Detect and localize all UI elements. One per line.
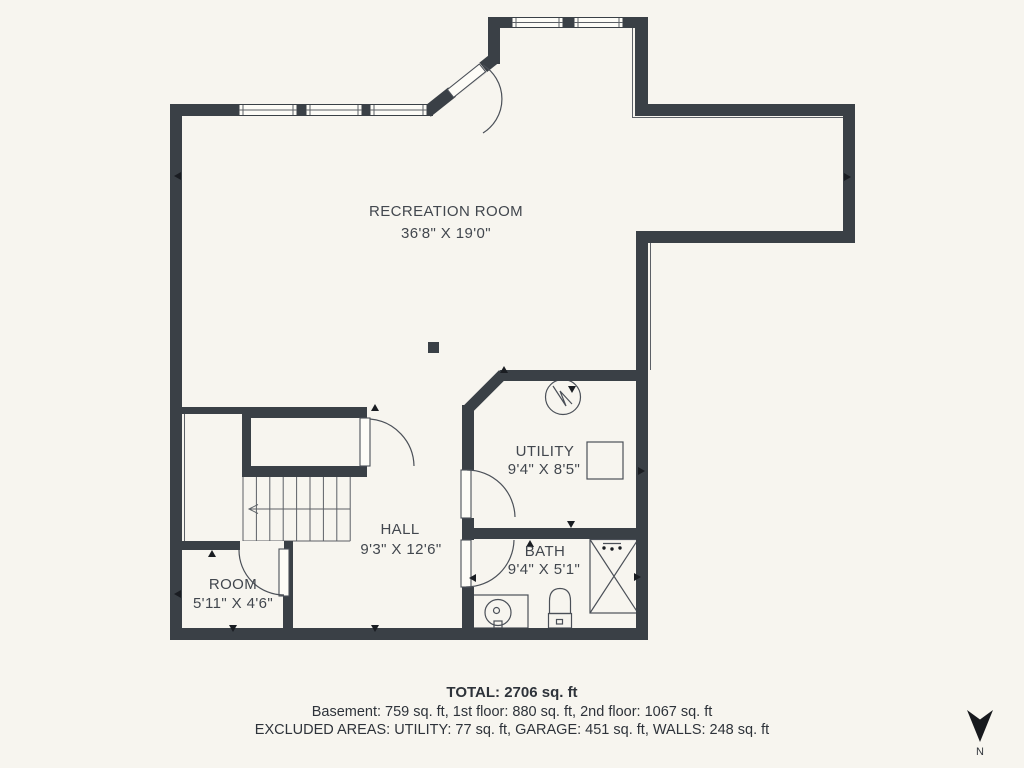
room-dims-hall: 9'3" X 12'6" — [360, 541, 441, 558]
summary-excluded: EXCLUDED AREAS: UTILITY: 77 sq. ft, GARA… — [255, 722, 769, 738]
room-label-hall: HALL — [380, 521, 419, 538]
summary-floors: Basement: 759 sq. ft, 1st floor: 880 sq.… — [312, 704, 713, 720]
floor-plan-canvas: RECREATION ROOM 36'8" X 19'0" UTILITY 9'… — [0, 0, 1024, 768]
room-label-utility: UTILITY — [516, 443, 575, 460]
room-dims-room: 5'11" X 4'6" — [193, 595, 273, 612]
column — [428, 342, 439, 353]
summary-total: TOTAL: 2706 sq. ft — [446, 684, 577, 701]
floor-plan-page: RECREATION ROOM 36'8" X 19'0" UTILITY 9'… — [0, 0, 1024, 768]
room-dims-utility: 9'4" X 8'5" — [508, 461, 581, 478]
background — [0, 0, 1024, 768]
north-label: N — [976, 746, 984, 758]
window-bump-out — [512, 17, 623, 28]
room-label-bath: BATH — [525, 543, 566, 560]
window-top-left — [239, 104, 427, 116]
room-label-recreation: RECREATION ROOM — [369, 203, 523, 220]
room-dims-bath: 9'4" X 5'1" — [508, 561, 581, 578]
room-dims-recreation: 36'8" X 19'0" — [401, 225, 491, 242]
room-label-room: ROOM — [209, 576, 257, 593]
